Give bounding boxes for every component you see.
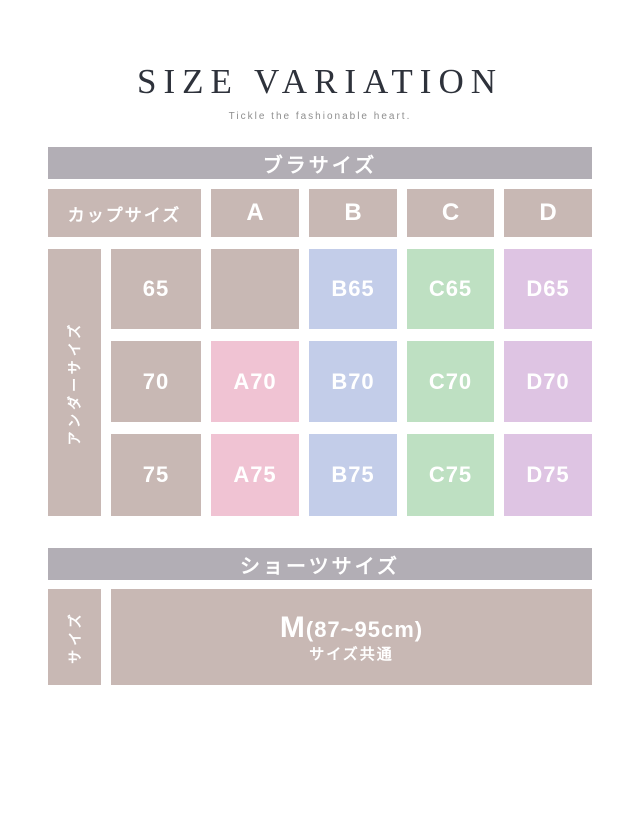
size-cell-d65: D65 xyxy=(504,249,592,329)
size-cell-d70: D70 xyxy=(504,341,592,422)
size-cell-a75: A75 xyxy=(211,434,299,516)
cup-column-header-d: D xyxy=(504,189,592,237)
size-cell-b70: B70 xyxy=(309,341,397,422)
shorts-size-value-line: M(87~95cm) xyxy=(280,609,423,647)
size-cell-c70: C70 xyxy=(407,341,494,422)
under-size-axis-label: アンダーサイズ xyxy=(65,320,85,445)
bra-size-section: ブラサイズ カップサイズ A B C D アンダーサイズ 65 B65 C65 … xyxy=(48,147,592,516)
cup-column-header-c: C xyxy=(407,189,494,237)
size-cell-a65-empty xyxy=(211,249,299,329)
shorts-size-axis-label: サイズ xyxy=(65,610,85,664)
shorts-size-value-cell: M(87~95cm) サイズ共通 xyxy=(111,589,592,685)
cup-column-header-a: A xyxy=(211,189,299,237)
bra-size-section-header: ブラサイズ xyxy=(48,147,592,179)
under-size-axis-header: アンダーサイズ xyxy=(48,249,101,516)
under-row-header-65: 65 xyxy=(111,249,201,329)
shorts-size-grid: サイズ M(87~95cm) サイズ共通 xyxy=(48,589,592,685)
size-cell-b75: B75 xyxy=(309,434,397,516)
size-variation-page: SIZE VARIATION Tickle the fashionable he… xyxy=(0,62,640,830)
shorts-size-section: ショーツサイズ サイズ M(87~95cm) サイズ共通 xyxy=(48,548,592,685)
size-tables: ブラサイズ カップサイズ A B C D アンダーサイズ 65 B65 C65 … xyxy=(48,147,592,685)
page-subtitle: Tickle the fashionable heart. xyxy=(0,111,640,122)
cup-size-axis-header: カップサイズ xyxy=(48,189,201,237)
page-title: SIZE VARIATION xyxy=(0,62,640,102)
size-cell-b65: B65 xyxy=(309,249,397,329)
size-cell-c75: C75 xyxy=(407,434,494,516)
size-cell-d75: D75 xyxy=(504,434,592,516)
size-cell-a70: A70 xyxy=(211,341,299,422)
under-row-header-70: 70 xyxy=(111,341,201,422)
shorts-size-section-header: ショーツサイズ xyxy=(48,548,592,580)
cup-column-header-b: B xyxy=(309,189,397,237)
under-row-header-75: 75 xyxy=(111,434,201,516)
size-cell-c65: C65 xyxy=(407,249,494,329)
shorts-size-axis-header: サイズ xyxy=(48,589,101,685)
shorts-size-note: サイズ共通 xyxy=(309,646,394,665)
shorts-size-value: M xyxy=(280,611,306,644)
bra-size-grid: カップサイズ A B C D アンダーサイズ 65 B65 C65 D65 70… xyxy=(48,189,592,516)
shorts-size-range: (87~95cm) xyxy=(306,617,423,642)
